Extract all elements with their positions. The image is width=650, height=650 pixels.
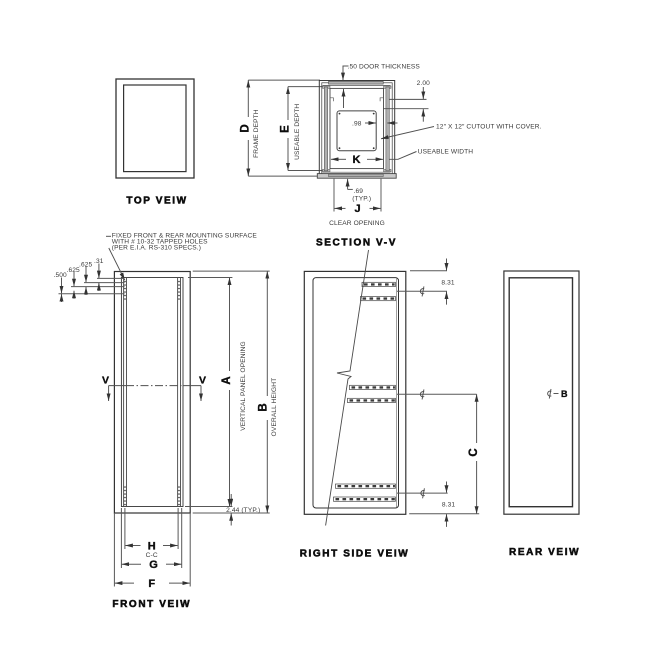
svg-text:FRONT VEIW: FRONT VEIW xyxy=(112,599,191,610)
svg-text:H: H xyxy=(148,541,156,553)
svg-text:V: V xyxy=(102,374,109,386)
svg-text:.500: .500 xyxy=(54,272,68,279)
svg-text:D: D xyxy=(240,124,252,132)
svg-text:F: F xyxy=(148,578,155,590)
svg-text:.98: .98 xyxy=(352,121,362,128)
svg-text:8.31: 8.31 xyxy=(441,279,455,286)
svg-text:VERTICAL PANEL OPENING: VERTICAL PANEL OPENING xyxy=(240,341,247,430)
svg-text:12″ X 12″ CUTOUT WITH COV: 12″ X 12″ CUTOUT WITH COVER. xyxy=(436,123,542,130)
svg-text:.50 DOOR THICKNESS: .50 DOOR THICKNESS xyxy=(348,63,421,70)
svg-text:CLEAR OPENING: CLEAR OPENING xyxy=(329,220,385,227)
svg-text:OVERALL HEIGHT: OVERALL HEIGHT xyxy=(271,378,278,437)
svg-text:SECTION V-V: SECTION V-V xyxy=(316,237,397,248)
svg-text:C-C: C-C xyxy=(146,552,158,559)
svg-text:E: E xyxy=(279,125,291,133)
svg-text:REAR VEIW: REAR VEIW xyxy=(509,547,580,558)
svg-text:J: J xyxy=(354,203,360,215)
svg-text:8.31: 8.31 xyxy=(442,502,456,509)
svg-text:2.00: 2.00 xyxy=(417,80,431,87)
svg-text:G: G xyxy=(149,559,158,571)
svg-text:TOP VEIW: TOP VEIW xyxy=(126,196,187,207)
svg-text:USEABLE WIDTH: USEABLE WIDTH xyxy=(418,148,474,155)
svg-text:A: A xyxy=(221,376,233,384)
svg-text:B: B xyxy=(561,389,568,399)
svg-text:2.44 (TYP.): 2.44 (TYP.) xyxy=(226,507,260,514)
svg-text:USEABLE DEPTH: USEABLE DEPTH xyxy=(294,104,301,160)
svg-text:.69: .69 xyxy=(354,188,364,195)
svg-text:RIGHT SIDE VEIW: RIGHT SIDE VEIW xyxy=(300,549,410,560)
svg-text:V: V xyxy=(199,374,206,386)
svg-text:B: B xyxy=(257,403,269,411)
svg-text:K: K xyxy=(353,154,361,166)
svg-text:FRAME DEPTH: FRAME DEPTH xyxy=(253,109,260,158)
svg-text:C: C xyxy=(468,448,480,456)
svg-text:.31: .31 xyxy=(94,258,104,265)
svg-text:.625: .625 xyxy=(67,267,81,274)
svg-text:.625: .625 xyxy=(79,261,93,268)
svg-text:(TYP.): (TYP.) xyxy=(352,195,371,202)
svg-text:(PER E.I.A. RS-310 SPECS.): (PER E.I.A. RS-310 SPECS.) xyxy=(112,245,201,252)
